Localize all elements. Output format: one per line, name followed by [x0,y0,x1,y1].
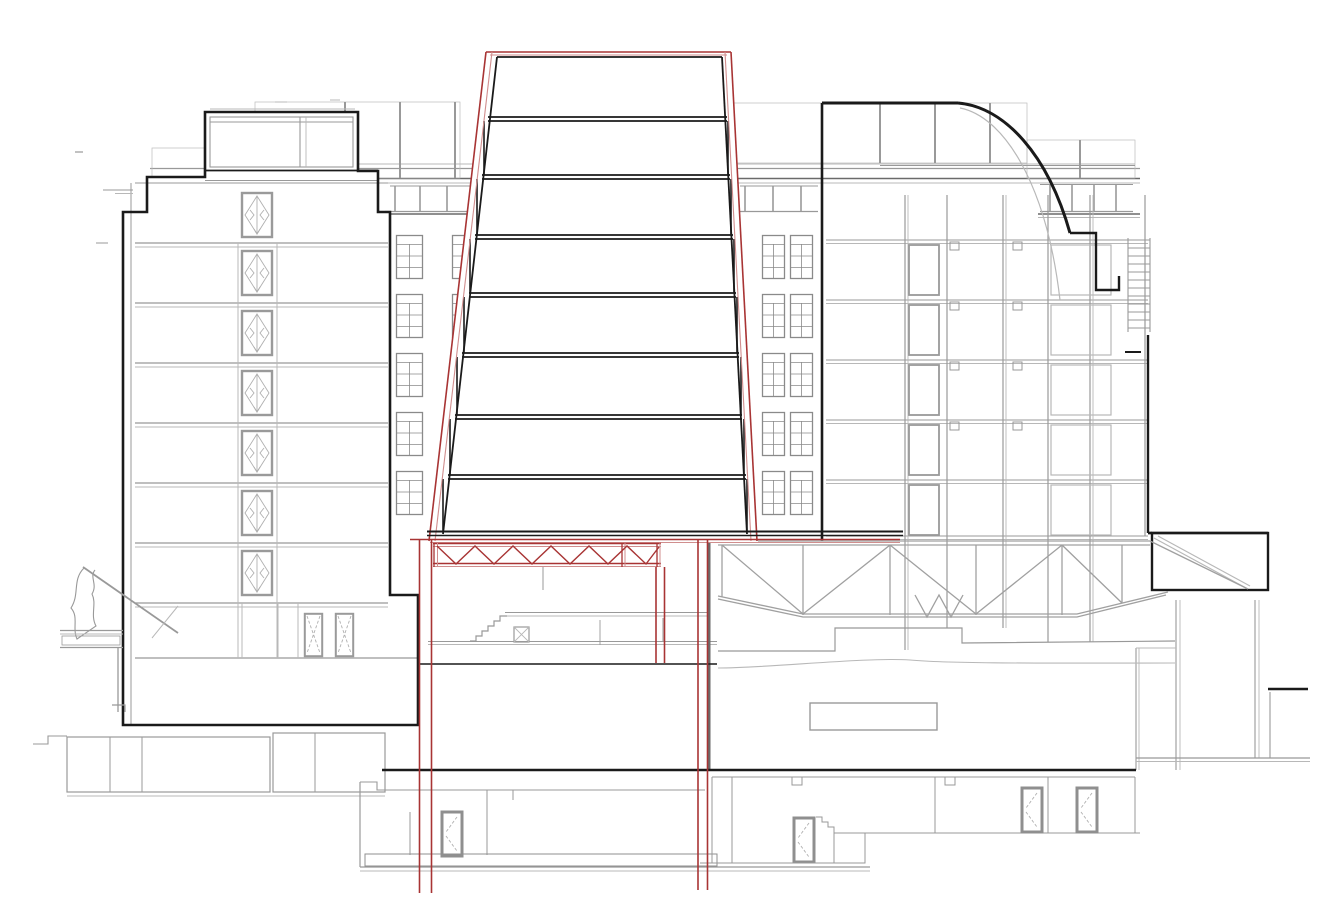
roof-parapet-step [1070,233,1119,290]
basement-stair [816,817,834,833]
red-transfer-truss [433,543,661,567]
drawing-canvas [0,0,1326,922]
parapet-wall [1119,292,1125,352]
cantilever-box [1148,533,1268,590]
acoustic-ceiling-curve [718,659,1175,668]
access-ladder [1128,238,1150,332]
steel-truss [718,541,1248,617]
flag [71,568,96,639]
hall-ceiling-right [718,628,1175,668]
red-truss-diagonals [437,546,659,564]
right-lower-walls [1136,600,1310,770]
basement-door-2 [1022,788,1042,832]
stage-recess [810,703,937,730]
left-basement [33,733,385,796]
mezzanine-and-stair [428,566,717,645]
basement-door-1 [794,818,814,862]
right-building-door-panels [909,242,1111,535]
beam-strip [365,854,717,866]
left-building [60,100,418,725]
basement-door-3 [1077,788,1097,832]
right-building-columns [905,195,1145,650]
basement-levels [33,733,1140,871]
right-building [822,103,1310,770]
section-drawing [0,0,1326,922]
right-building-floors [826,240,1148,540]
curved-roof-inner-line [960,108,1060,300]
basement-lift-door [442,812,462,856]
proposed-red-structure [410,540,900,894]
center-tower [429,51,758,542]
auditorium-hall [428,541,1175,770]
right-basement [700,777,1140,863]
